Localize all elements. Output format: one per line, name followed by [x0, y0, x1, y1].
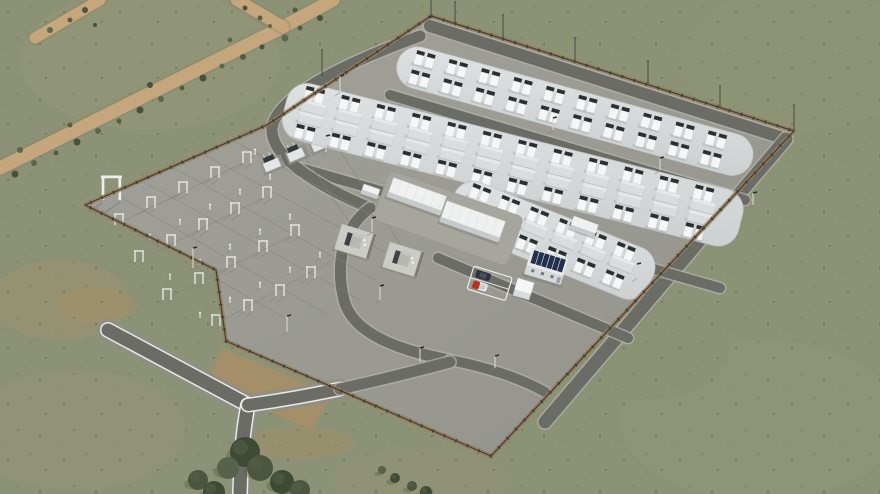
roadside-bush [47, 27, 53, 33]
bus-post-insulator [209, 204, 211, 206]
bus-post-insulator [319, 252, 321, 254]
facility-aerial-render [0, 0, 880, 494]
bus-post-insulator [289, 267, 291, 269]
tree-highlight [233, 440, 248, 455]
roadside-bush [268, 24, 272, 28]
bus-post-insulator [259, 282, 261, 284]
roadside-bush [180, 86, 185, 91]
lamp-head [287, 315, 291, 316]
mast-tip [321, 49, 323, 51]
lamp-head [193, 247, 197, 248]
bus-post-insulator [199, 312, 201, 314]
roadside-bush [95, 128, 101, 134]
roadside-bush [147, 82, 153, 88]
lamp-head [380, 285, 384, 286]
tree-highlight [205, 483, 216, 494]
roadside-bush [158, 96, 164, 102]
tree-highlight [391, 474, 396, 479]
lamp-head [660, 157, 664, 158]
roadside-bush [317, 15, 323, 21]
bus-post-insulator [289, 214, 291, 216]
mast-tip [647, 60, 649, 62]
roadside-bush [200, 75, 207, 82]
scene-canvas [0, 0, 880, 494]
roadside-bush [240, 54, 246, 60]
tree-highlight [219, 459, 230, 470]
mast-tip [502, 14, 504, 16]
tree-highlight [190, 472, 200, 482]
bus-post-insulator [259, 229, 261, 231]
mast-tip [719, 85, 721, 87]
roadside-bush [282, 35, 289, 42]
lamp-head [753, 192, 757, 193]
tree-highlight [250, 458, 263, 471]
roadside-bush [12, 171, 19, 178]
bus-post-insulator [229, 244, 231, 246]
roadside-bush [228, 38, 233, 43]
bus-post-insulator [169, 274, 171, 276]
roadside-bush [117, 119, 122, 124]
lamp-head [495, 355, 499, 356]
roadside-bush [93, 23, 97, 27]
bus-post-insulator [254, 149, 256, 151]
roadside-bush [74, 139, 81, 146]
mast-tip [574, 37, 576, 39]
lamp-head [340, 75, 344, 76]
roadside-bush [260, 45, 265, 50]
roadside-bush [54, 151, 59, 156]
roadside-bush [258, 16, 263, 21]
mast-tip [454, 1, 456, 3]
roadside-bush [31, 160, 37, 166]
roadside-bush [68, 18, 73, 23]
tree-highlight [408, 482, 413, 487]
bus-post-insulator [239, 189, 241, 191]
mast-tip [793, 104, 795, 106]
tree-highlight [292, 482, 302, 492]
lamp-head [637, 263, 641, 264]
bus-post-insulator [179, 219, 181, 221]
roadside-bush [68, 123, 73, 128]
lamp-head [420, 347, 424, 348]
tree-highlight [272, 472, 284, 484]
roadside-bush [298, 26, 303, 31]
tree-highlight [379, 467, 383, 471]
roadside-bush [293, 8, 298, 13]
roadside-bush [220, 64, 225, 69]
lamp-head [372, 217, 376, 218]
bus-post-insulator [229, 297, 231, 299]
roadside-bush [137, 107, 144, 114]
roadside-bush [243, 6, 248, 11]
roadside-bush [17, 147, 23, 153]
lamp-head [326, 135, 330, 136]
lamp-head [553, 117, 557, 118]
roadside-bush [82, 7, 88, 13]
tree-highlight [421, 487, 427, 493]
